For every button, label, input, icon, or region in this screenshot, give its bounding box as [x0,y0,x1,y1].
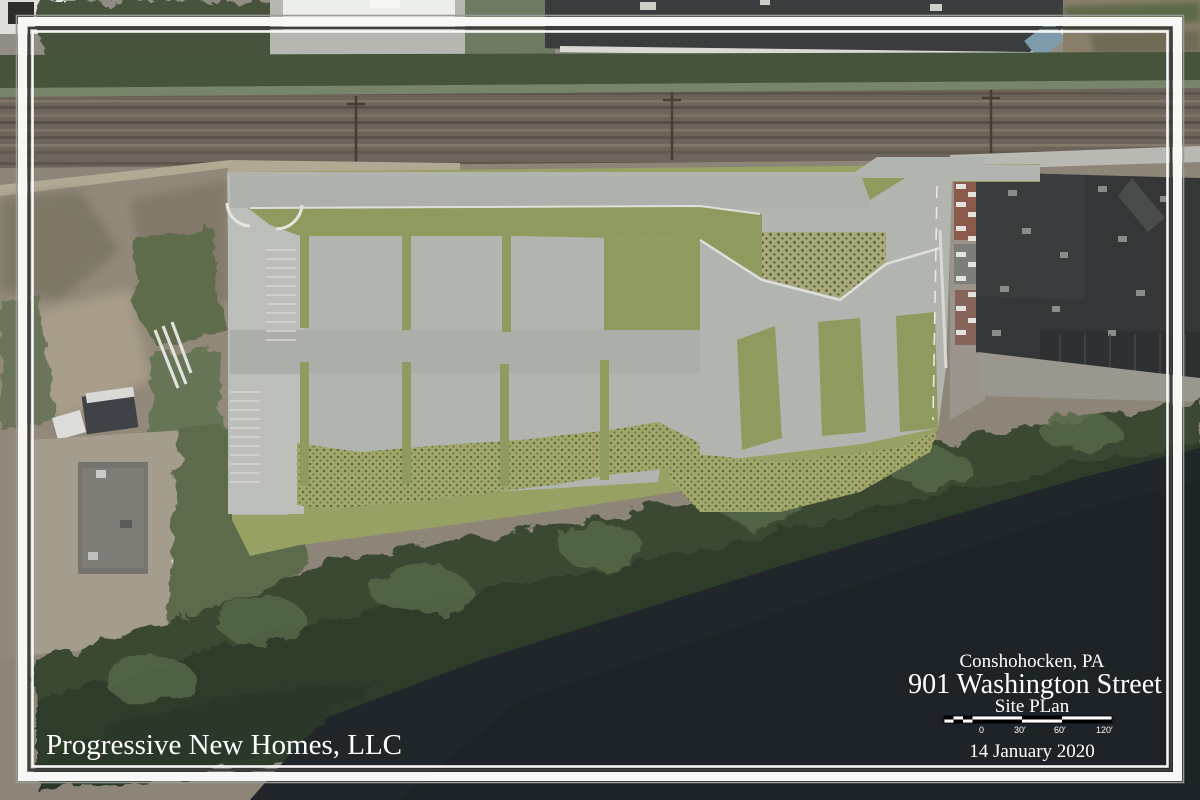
svg-text:30′: 30′ [1014,725,1026,735]
svg-text:Site PLan: Site PLan [995,696,1070,717]
svg-text:Progressive New Homes, LLC: Progressive New Homes, LLC [46,729,402,761]
svg-text:120′: 120′ [1096,725,1113,735]
svg-text:0: 0 [979,725,984,735]
svg-text:14 January 2020: 14 January 2020 [969,741,1095,762]
svg-text:60′: 60′ [1054,725,1066,735]
